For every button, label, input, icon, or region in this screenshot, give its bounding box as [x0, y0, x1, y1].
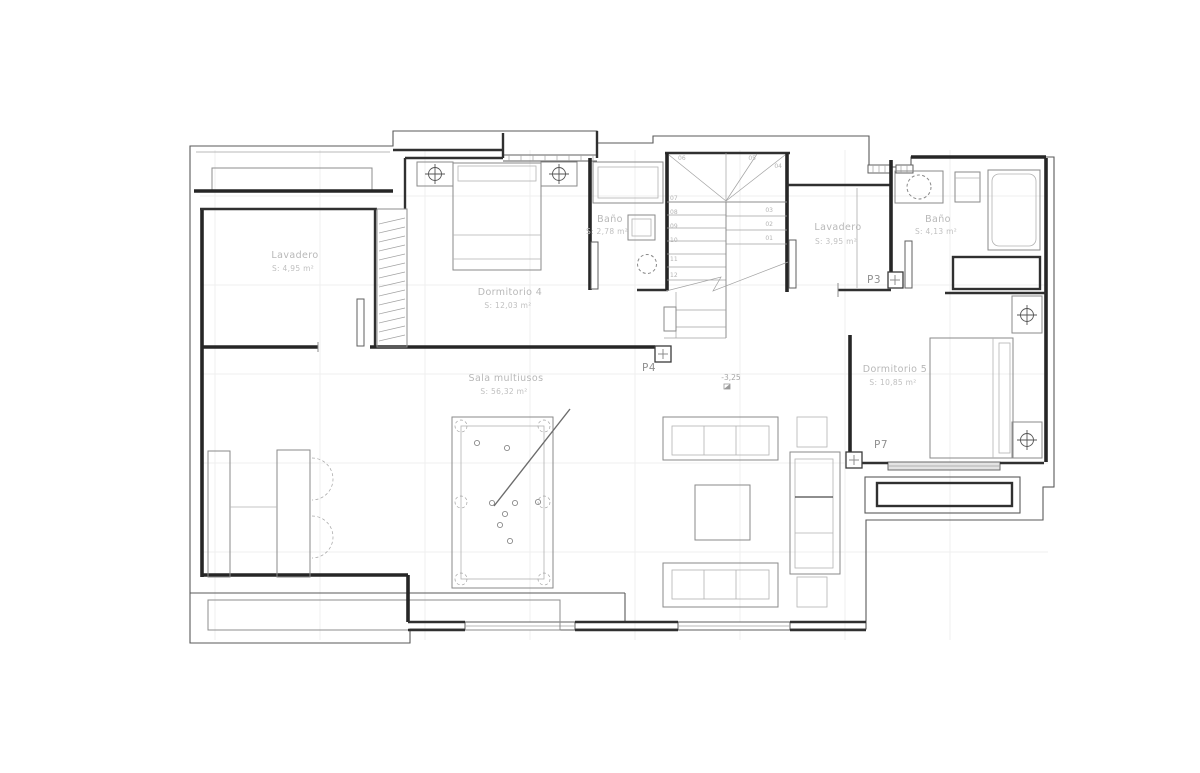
- floor-plan-canvas: 01 02 03 04 05 06 07 08 09 10 11 12: [0, 0, 1200, 773]
- room-area: S: 56,32 m²: [480, 387, 527, 396]
- cue-stick: [494, 409, 570, 506]
- compass-symbol: [549, 164, 569, 184]
- bathtub: [988, 170, 1040, 250]
- desk: [208, 451, 230, 577]
- pool-table: [452, 409, 570, 588]
- room-name: Lavadero: [814, 222, 861, 233]
- pool-balls: [474, 440, 540, 543]
- floor-plan-page: 01 02 03 04 05 06 07 08 09 10 11 12: [0, 0, 1200, 773]
- window-dormitorio-4: [503, 155, 597, 161]
- desk: [277, 450, 310, 577]
- cabinet: [955, 172, 980, 202]
- window-bottom-2: [678, 622, 790, 630]
- stair-step-number: 12: [670, 272, 678, 279]
- side-table: [797, 577, 827, 607]
- level-value: -3,25: [721, 373, 741, 382]
- toilet: [638, 255, 657, 274]
- desk-area: [208, 450, 333, 577]
- shelf-counter: [953, 257, 1040, 289]
- stair-step-number: 05: [748, 155, 756, 162]
- stair-step-number: 07: [670, 195, 678, 202]
- window-dormitorio-5: [888, 462, 1000, 470]
- room-area: S: 3,95 m²: [815, 237, 857, 246]
- room-label-bano-2: Baño S: 4,13 m²: [915, 214, 957, 236]
- door-leaf-lavadero-1: [357, 299, 364, 346]
- stair-step-number: 09: [670, 223, 678, 230]
- stair-step-number: 01: [765, 235, 773, 242]
- washbasin: [907, 175, 931, 199]
- compass-symbol: [1017, 430, 1037, 450]
- chaise-right: [790, 452, 840, 574]
- wardrobe-dormitorio-4: [377, 209, 407, 347]
- stair-step-number: 04: [774, 163, 782, 170]
- room-area: S: 4,13 m²: [915, 227, 957, 236]
- stair-step-number: 03: [765, 207, 773, 214]
- door-leaf-lavadero-2: [789, 240, 796, 288]
- stair-step-number: 10: [670, 237, 678, 244]
- stair-break-line: [666, 262, 788, 291]
- room-name: Baño: [925, 214, 951, 225]
- bed-dormitorio-4: [417, 162, 577, 270]
- door-leaf-bano-2: [905, 241, 912, 288]
- coffee-table: [695, 485, 750, 540]
- window-top-small-2: [896, 165, 913, 173]
- door-label-p4: P4: [642, 362, 656, 374]
- door-p3: P3: [867, 272, 903, 288]
- door-label-p7: P7: [874, 439, 888, 451]
- room-label-bano-1: Baño S: 2,78 m²: [586, 214, 628, 236]
- room-area: S: 2,78 m²: [586, 227, 628, 236]
- room-label-dormitorio-4: Dormitorio 4 S: 12,03 m²: [478, 287, 543, 310]
- door-label-p3: P3: [867, 274, 881, 286]
- stair-newel-post: [664, 307, 676, 331]
- room-label-lavadero-2: Lavadero S: 3,95 m²: [814, 222, 861, 246]
- stair-step-number: 11: [670, 256, 678, 263]
- window-bottom-1: [465, 622, 575, 630]
- room-area: S: 10,85 m²: [869, 378, 916, 387]
- room-name: Lavadero: [271, 250, 318, 261]
- window-top-small-1: [868, 165, 890, 173]
- bed-dormitorio-5: [930, 296, 1042, 458]
- room-area: S: 12,03 m²: [484, 301, 531, 310]
- room-label-sala-multiusos: Sala multiusos S: 56,32 m²: [469, 373, 544, 396]
- level-marker: -3,25: [721, 373, 741, 389]
- room-label-dormitorio-5: Dormitorio 5 S: 10,85 m²: [863, 364, 928, 387]
- washbasin-counter: [895, 171, 943, 203]
- compass-symbol: [425, 164, 445, 184]
- door-leaf-bano-1: [591, 242, 598, 289]
- walls: [194, 131, 1046, 630]
- room-area: S: 4,95 m²: [272, 264, 314, 273]
- balcony-bottom-right: [865, 477, 1020, 513]
- terrace-window-top-left: [212, 168, 372, 190]
- sofa-bottom: [663, 563, 778, 607]
- room-label-lavadero-1: Lavadero S: 4,95 m²: [271, 250, 318, 273]
- shower: [593, 162, 663, 203]
- side-table: [797, 417, 827, 447]
- sofa-set: [663, 417, 840, 607]
- staircase: 01 02 03 04 05 06 07 08 09 10 11 12: [664, 153, 788, 338]
- stair-step-number: 08: [670, 209, 678, 216]
- chair: [312, 458, 333, 500]
- compass-symbol: [1017, 305, 1037, 325]
- stair-step-number: 02: [765, 221, 773, 228]
- room-name: Sala multiusos: [469, 373, 544, 384]
- grid-lines: [200, 150, 1048, 640]
- door-p4: P4: [642, 346, 671, 374]
- sofa-top: [663, 417, 778, 460]
- stair-step-number: 06: [678, 155, 686, 162]
- room-name: Dormitorio 5: [863, 364, 928, 375]
- room-name: Dormitorio 4: [478, 287, 543, 298]
- room-name: Baño: [597, 214, 623, 225]
